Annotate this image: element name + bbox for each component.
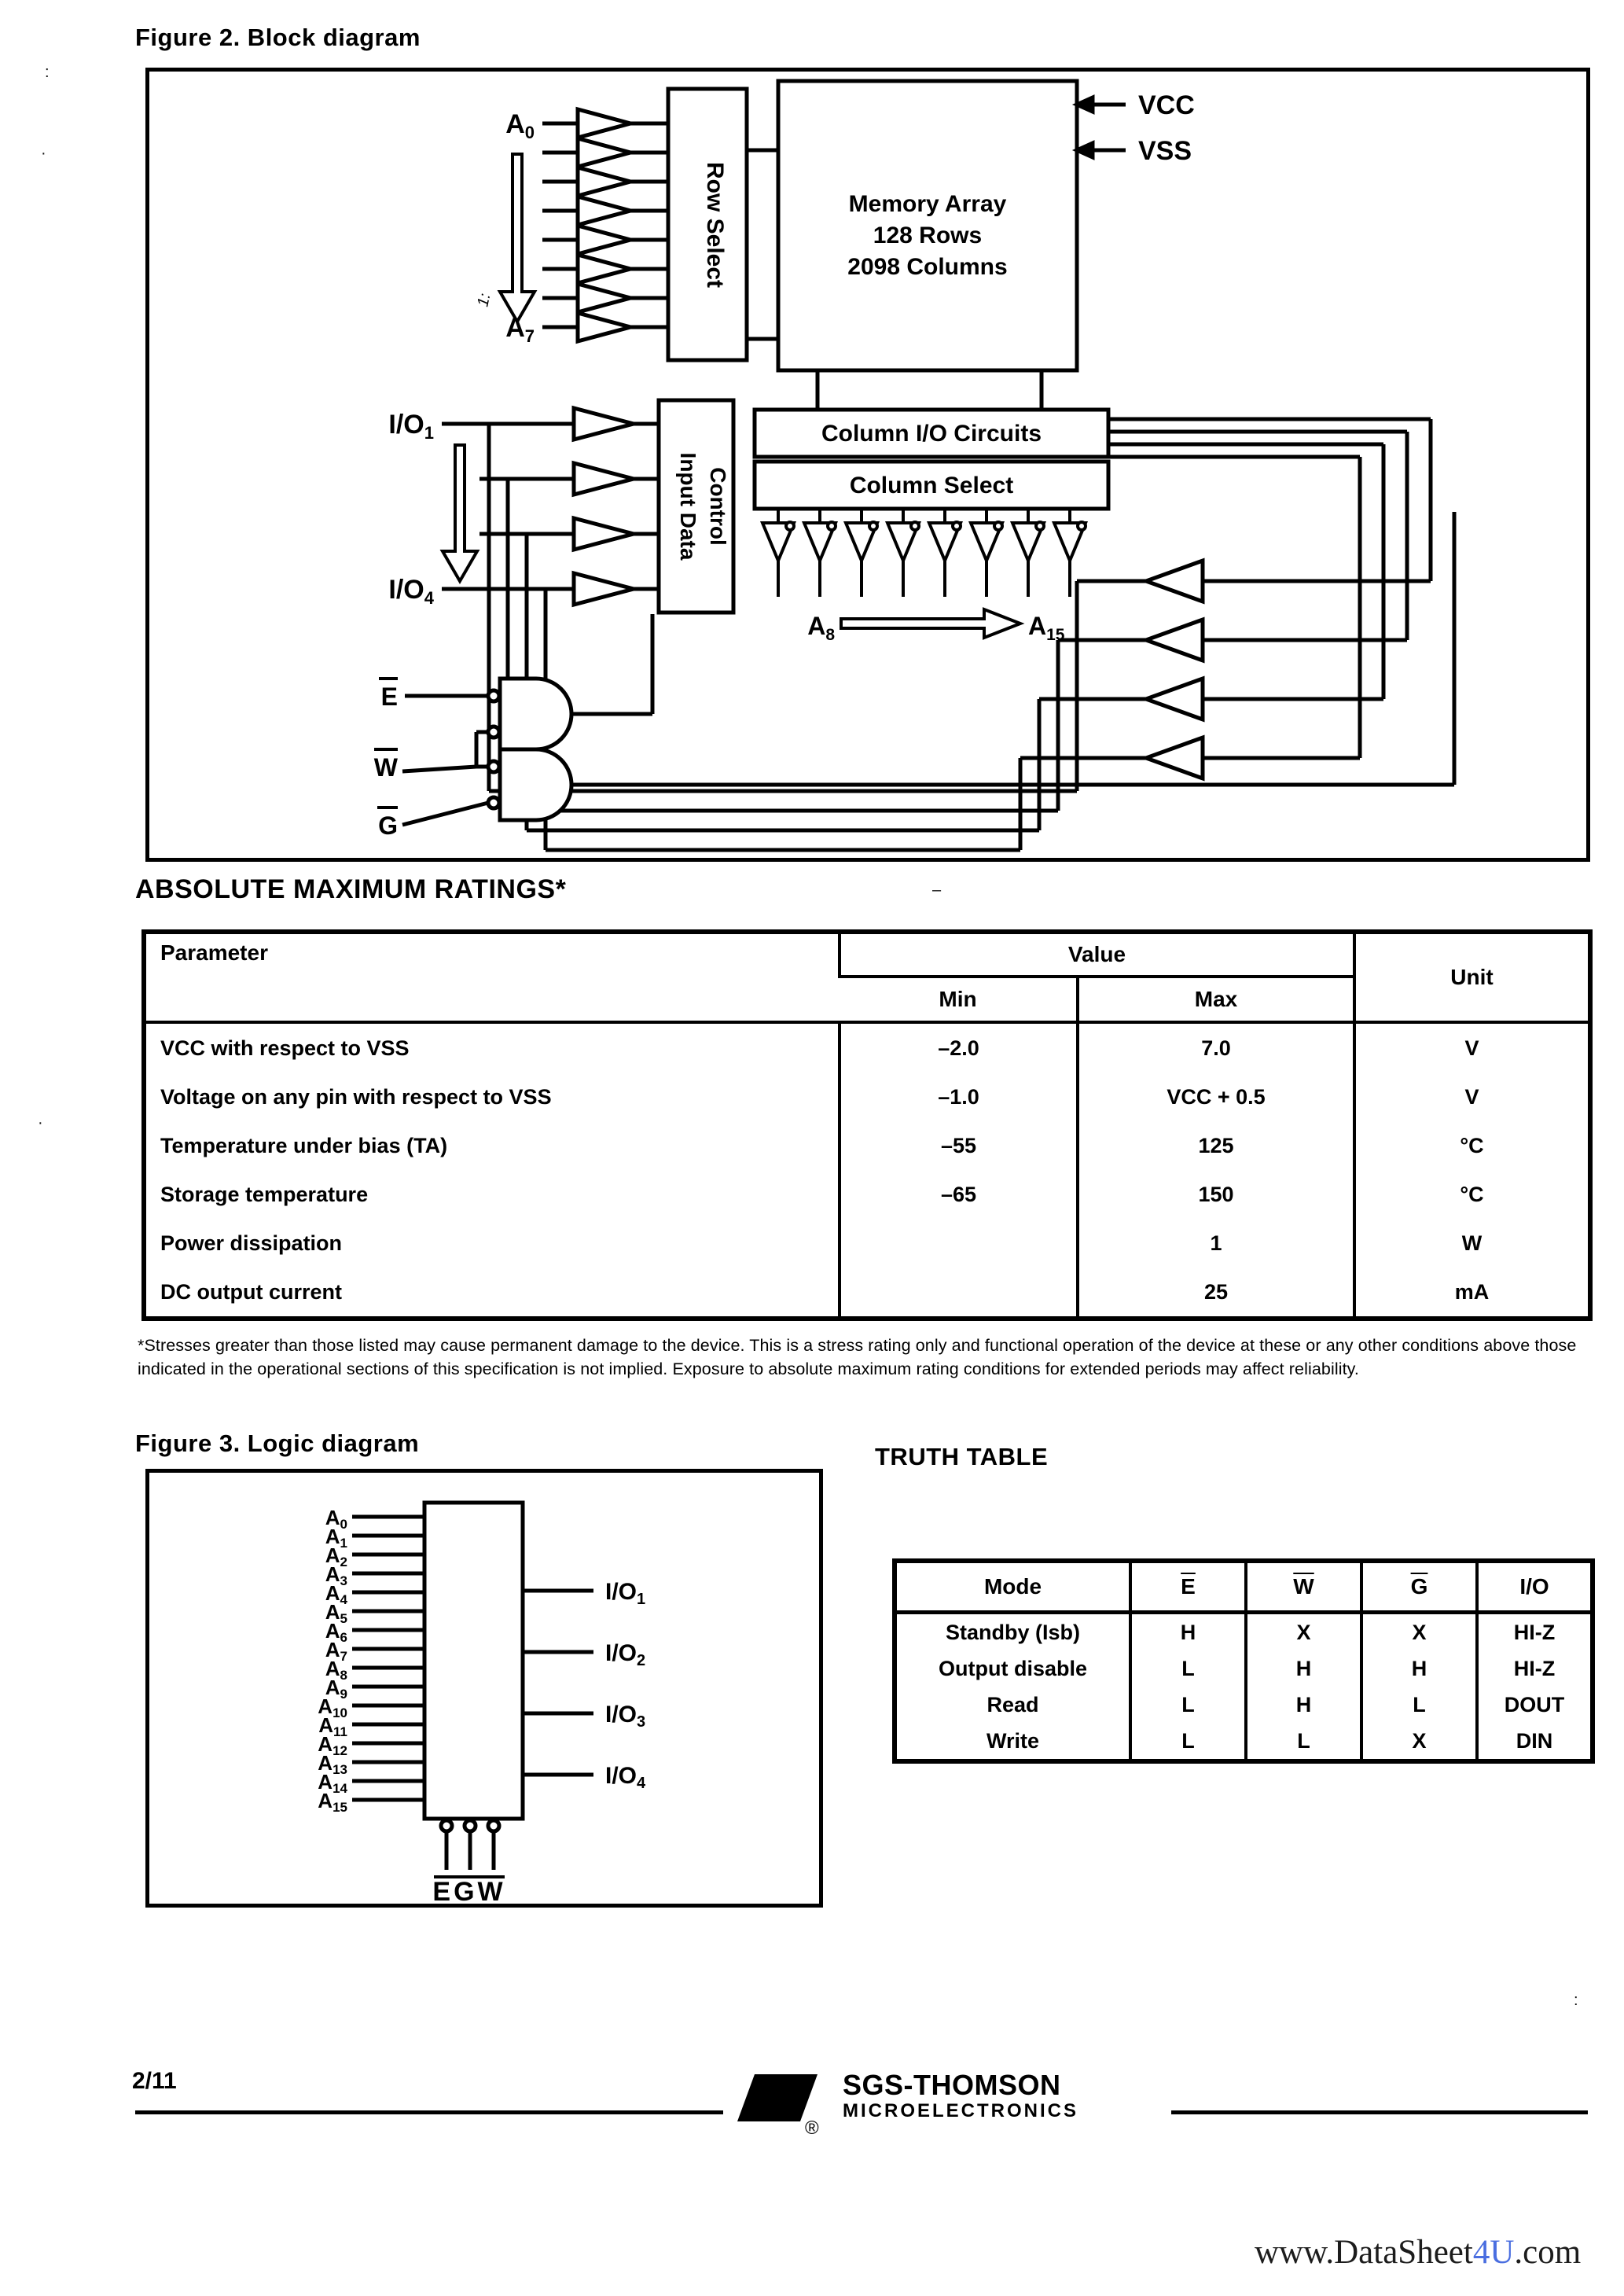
col-min: Min xyxy=(840,977,1078,1022)
e-cell: H xyxy=(1130,1613,1246,1651)
watermark-prefix: www.DataSheet xyxy=(1255,2234,1473,2271)
row-address-buffers xyxy=(542,109,668,341)
page-number: 2/11 xyxy=(132,2068,177,2095)
footer-rule-left xyxy=(135,2110,723,2114)
control-gates xyxy=(402,512,1454,825)
mode-cell: Output disable xyxy=(895,1650,1130,1687)
watermark: www.DataSheet4U.com xyxy=(1255,2233,1581,2272)
a7-label: A7 xyxy=(505,313,535,346)
unit-cell: °C xyxy=(1354,1170,1590,1219)
a8-label: A8 xyxy=(807,612,835,644)
address-range-arrow xyxy=(500,154,535,322)
a0-label: A0 xyxy=(505,109,535,142)
datasheet-page: : · · – · : Figure 2. Block diagram xyxy=(0,0,1624,2296)
io-cell: HI-Z xyxy=(1477,1613,1593,1651)
parameter-cell: VCC with respect to VSS xyxy=(144,1022,840,1073)
row-select-label: Row Select xyxy=(702,162,728,288)
egw-label: EGW xyxy=(432,1877,505,1904)
io-input-buffers xyxy=(442,408,659,605)
w-cell: H xyxy=(1246,1687,1361,1723)
truth-table: Mode E W G I/O Standby (Isb) H X X HI-Z … xyxy=(892,1558,1595,1764)
e-cell: L xyxy=(1130,1687,1246,1723)
parameter-cell: Power dissipation xyxy=(144,1219,840,1268)
ratings-footnote: *Stresses greater than those listed may … xyxy=(138,1334,1624,1381)
io-cell: DOUT xyxy=(1477,1687,1593,1723)
column-address-arrow xyxy=(841,609,1020,638)
max-cell: 1 xyxy=(1078,1219,1354,1268)
registered-mark: ® xyxy=(805,2118,819,2137)
tt-col-e: E xyxy=(1130,1561,1246,1613)
scan-artifact: · xyxy=(38,1115,43,1131)
table-row: Temperature under bias (TA) –55 125 °C xyxy=(144,1121,1590,1170)
logic-diagram-svg: A0 A1 A2 A3 A4 A5 A6 A7 A8 A9 A10 A11 A1… xyxy=(149,1473,819,1904)
brand-name: SGS-THOMSON xyxy=(843,2071,1078,2099)
min-cell xyxy=(840,1268,1078,1319)
table-row: Output disable L H H HI-Z xyxy=(895,1650,1593,1687)
column-io-label: Column I/O Circuits xyxy=(821,421,1042,447)
a15-label: A15 xyxy=(1028,612,1065,644)
col-parameter: Parameter xyxy=(144,932,840,1022)
io1-label: I/O1 xyxy=(388,410,434,443)
g-cell: L xyxy=(1361,1687,1477,1723)
max-cell: 7.0 xyxy=(1078,1022,1354,1073)
tt-col-mode: Mode xyxy=(895,1561,1130,1613)
vss-arrowhead xyxy=(1077,143,1093,157)
memory-array-line3: 2098 Columns xyxy=(847,254,1007,280)
tt-col-io: I/O xyxy=(1477,1561,1593,1613)
scan-artifact: · xyxy=(41,145,46,161)
figure2-title: Figure 2. Block diagram xyxy=(135,24,421,52)
parameter-cell: Temperature under bias (TA) xyxy=(144,1121,840,1170)
logic-wiring xyxy=(352,1503,593,1877)
min-cell: –65 xyxy=(840,1170,1078,1219)
mode-cell: Read xyxy=(895,1687,1130,1723)
g-label: G xyxy=(378,811,398,840)
io4-label: I/O4 xyxy=(388,575,434,608)
memory-array-line1: Memory Array xyxy=(849,191,1007,217)
w-cell: L xyxy=(1246,1723,1361,1761)
parameter-cell: Voltage on any pin with respect to VSS xyxy=(144,1073,840,1121)
mode-cell: Standby (Isb) xyxy=(895,1613,1130,1651)
input-data-control-line1: Input Data xyxy=(676,453,700,561)
chip-body xyxy=(424,1503,523,1819)
scan-artifact: : xyxy=(45,64,50,80)
g-cell: X xyxy=(1361,1613,1477,1651)
io-range-arrow xyxy=(443,445,477,581)
logo-monogram: ST xyxy=(756,2082,801,2119)
max-cell: 25 xyxy=(1078,1268,1354,1319)
min-cell: –2.0 xyxy=(840,1022,1078,1073)
parameter-cell: Storage temperature xyxy=(144,1170,840,1219)
g-cell: X xyxy=(1361,1723,1477,1761)
memory-array-line2: 128 Rows xyxy=(873,223,982,248)
min-cell xyxy=(840,1219,1078,1268)
ratings-table: Parameter Value Unit Min Max VCC with re… xyxy=(141,929,1593,1321)
vcc-label: VCC xyxy=(1138,90,1195,120)
unit-cell: V xyxy=(1354,1022,1590,1073)
col-max: Max xyxy=(1078,977,1354,1022)
figure2-block-diagram: Row Select Memory Array 128 Rows 2098 Co… xyxy=(145,68,1590,862)
figure3-logic-diagram: A0 A1 A2 A3 A4 A5 A6 A7 A8 A9 A10 A11 A1… xyxy=(145,1469,823,1908)
max-cell: 125 xyxy=(1078,1121,1354,1170)
watermark-suffix: .com xyxy=(1514,2234,1581,2271)
max-cell: VCC + 0.5 xyxy=(1078,1073,1354,1121)
col-unit: Unit xyxy=(1354,932,1590,1022)
table-row: Storage temperature –65 150 °C xyxy=(144,1170,1590,1219)
ratings-heading: ABSOLUTE MAXIMUM RATINGS* xyxy=(135,874,566,905)
mode-cell: Write xyxy=(895,1723,1130,1761)
min-cell: –1.0 xyxy=(840,1073,1078,1121)
figure3-title: Figure 3. Logic diagram xyxy=(135,1429,419,1458)
w-cell: H xyxy=(1246,1650,1361,1687)
w-cell: X xyxy=(1246,1613,1361,1651)
g-cell: H xyxy=(1361,1650,1477,1687)
brand-block: SGS-THOMSON MICROELECTRONICS xyxy=(843,2071,1078,2121)
e-cell: L xyxy=(1130,1723,1246,1761)
e-label: E xyxy=(381,683,398,711)
io-label: I/O3 xyxy=(605,1702,645,1731)
unit-cell: mA xyxy=(1354,1268,1590,1319)
tt-col-w: W xyxy=(1246,1561,1361,1613)
w-label: W xyxy=(374,753,399,782)
scan-artifact: : xyxy=(1574,1992,1578,2008)
control-signal-labels: E W G xyxy=(374,679,399,840)
unit-cell: °C xyxy=(1354,1121,1590,1170)
table-row: Read L H L DOUT xyxy=(895,1687,1593,1723)
io-label: I/O2 xyxy=(605,1640,645,1669)
truth-table-heading: TRUTH TABLE xyxy=(875,1443,1048,1471)
vss-label: VSS xyxy=(1138,136,1192,166)
column-select-label: Column Select xyxy=(850,473,1013,499)
block-diagram-svg: Row Select Memory Array 128 Rows 2098 Co… xyxy=(149,72,1586,858)
col-value: Value xyxy=(840,932,1354,977)
brand-subname: MICROELECTRONICS xyxy=(843,2102,1078,2121)
input-data-control-line2: Control xyxy=(706,467,730,546)
table-row: Standby (Isb) H X X HI-Z xyxy=(895,1613,1593,1651)
scan-mark: 1: xyxy=(474,292,494,308)
table-row: Write L L X DIN xyxy=(895,1723,1593,1761)
table-row: Power dissipation 1 W xyxy=(144,1219,1590,1268)
column-select-drivers xyxy=(762,509,1086,597)
unit-cell: V xyxy=(1354,1073,1590,1121)
io-cell: HI-Z xyxy=(1477,1650,1593,1687)
io-cell: DIN xyxy=(1477,1723,1593,1761)
sgs-thomson-logo-icon: ST ® xyxy=(733,2070,825,2137)
tt-col-g: G xyxy=(1361,1561,1477,1613)
min-cell: –55 xyxy=(840,1121,1078,1170)
table-row: Voltage on any pin with respect to VSS –… xyxy=(144,1073,1590,1121)
table-row: VCC with respect to VSS –2.0 7.0 V xyxy=(144,1022,1590,1073)
e-cell: L xyxy=(1130,1650,1246,1687)
io-label: I/O1 xyxy=(605,1579,645,1608)
parameter-cell: DC output current xyxy=(144,1268,840,1319)
max-cell: 150 xyxy=(1078,1170,1354,1219)
scan-artifact: – xyxy=(932,882,941,898)
table-row: DC output current 25 mA xyxy=(144,1268,1590,1319)
vcc-arrowhead xyxy=(1077,98,1093,112)
footer-rule-right xyxy=(1171,2110,1588,2114)
watermark-highlight: 4U xyxy=(1473,2234,1515,2271)
unit-cell: W xyxy=(1354,1219,1590,1268)
io-label: I/O4 xyxy=(605,1763,646,1792)
